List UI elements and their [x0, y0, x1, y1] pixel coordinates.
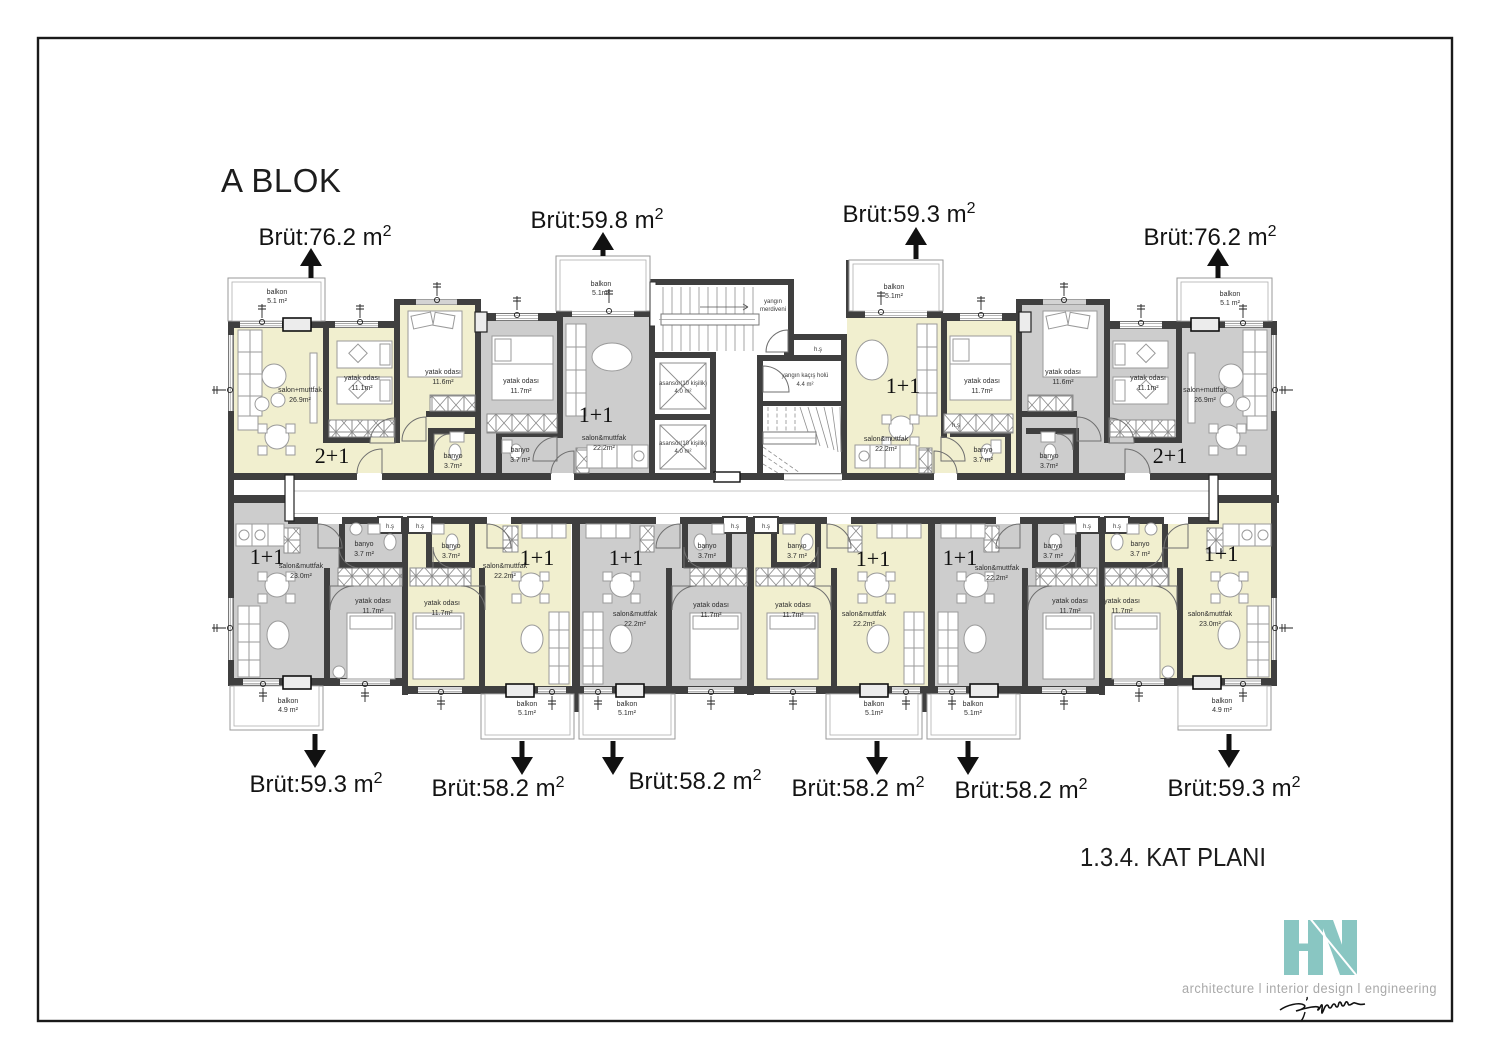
svg-text:22.2m²: 22.2m²: [986, 575, 1008, 582]
svg-text:h.ş: h.ş: [952, 423, 960, 429]
svg-text:salon+muttfak: salon+muttfak: [1183, 387, 1227, 394]
svg-text:2+1: 2+1: [315, 443, 349, 468]
svg-text:23.0m²: 23.0m²: [1199, 621, 1221, 628]
svg-text:yatak odası: yatak odası: [1045, 369, 1081, 376]
svg-text:balkon: balkon: [884, 284, 905, 291]
svg-text:banyo: banyo: [1039, 453, 1058, 460]
svg-text:banyo: banyo: [1130, 541, 1149, 548]
svg-text:balkon: balkon: [591, 281, 612, 288]
svg-text:banyo: banyo: [697, 543, 716, 550]
svg-text:merdiveni: merdiveni: [760, 307, 786, 313]
svg-text:1.3.4. KAT PLANI: 1.3.4. KAT PLANI: [1080, 842, 1266, 872]
svg-text:1+1: 1+1: [856, 546, 890, 571]
svg-text:banyo: banyo: [787, 543, 806, 550]
svg-text:yatak odası: yatak odası: [355, 598, 391, 605]
svg-text:salon&muttfak: salon&muttfak: [279, 563, 324, 570]
svg-text:3.7 m²: 3.7 m²: [1043, 553, 1064, 560]
svg-text:23.0m²: 23.0m²: [290, 573, 312, 580]
svg-text:11.7m²: 11.7m²: [362, 608, 384, 615]
svg-text:26.9m²: 26.9m²: [289, 397, 311, 404]
svg-text:5.1 m²: 5.1 m²: [267, 298, 288, 305]
svg-text:11.7m²: 11.7m²: [1111, 608, 1133, 615]
svg-text:Brüt:76.2 m2: Brüt:76.2 m2: [1144, 223, 1277, 251]
svg-text:h.ş: h.ş: [731, 524, 739, 530]
svg-text:3.7 m²: 3.7 m²: [1130, 551, 1151, 558]
svg-text:yatak odası: yatak odası: [503, 378, 539, 385]
svg-text:h.ş: h.ş: [1083, 524, 1091, 530]
svg-text:3.7m²: 3.7m²: [698, 553, 717, 560]
svg-text:yatak odası: yatak odası: [693, 602, 729, 609]
svg-text:1+1: 1+1: [943, 545, 977, 570]
svg-text:h.ş: h.ş: [814, 347, 822, 353]
svg-text:4.0 m²: 4.0 m²: [674, 449, 691, 455]
svg-text:1+1: 1+1: [886, 373, 920, 398]
svg-text:Brüt:76.2 m2: Brüt:76.2 m2: [259, 223, 392, 251]
svg-text:asansör(10 kişilik): asansör(10 kişilik): [659, 441, 707, 447]
svg-text:3.7 m²: 3.7 m²: [973, 457, 994, 464]
svg-text:5.1m²: 5.1m²: [518, 710, 537, 717]
svg-text:yatak odası: yatak odası: [1104, 598, 1140, 605]
svg-text:Brüt:58.2 m2: Brüt:58.2 m2: [629, 767, 762, 795]
svg-text:11.6m²: 11.6m²: [1052, 379, 1074, 386]
svg-text:11.7m²: 11.7m²: [431, 610, 453, 617]
svg-text:banyo: banyo: [510, 447, 529, 454]
svg-text:3.7m²: 3.7m²: [442, 553, 461, 560]
svg-text:5.1m²: 5.1m²: [865, 710, 884, 717]
svg-text:5.1m²: 5.1m²: [618, 710, 637, 717]
svg-text:balkon: balkon: [963, 701, 984, 708]
svg-text:22.2m²: 22.2m²: [593, 445, 615, 452]
svg-text:1+1: 1+1: [1204, 541, 1238, 566]
svg-text:salon&muttfak: salon&muttfak: [483, 563, 528, 570]
svg-text:yatak odası: yatak odası: [775, 602, 811, 609]
svg-text:Brüt:59.3 m2: Brüt:59.3 m2: [1168, 774, 1301, 802]
svg-text:11.7m²: 11.7m²: [1059, 608, 1081, 615]
svg-text:yatak odası: yatak odası: [964, 378, 1000, 385]
svg-text:3.7 m²: 3.7 m²: [354, 551, 375, 558]
svg-text:11.1m²: 11.1m²: [351, 385, 373, 392]
svg-text:22.2m²: 22.2m²: [875, 446, 897, 453]
svg-text:3.7 m²: 3.7 m²: [787, 553, 808, 560]
svg-text:h.ş: h.ş: [762, 524, 770, 530]
svg-text:h.ş: h.ş: [386, 524, 394, 530]
svg-text:A BLOK: A BLOK: [221, 162, 341, 199]
svg-text:11.7m²: 11.7m²: [971, 388, 993, 395]
svg-text:banyo: banyo: [441, 543, 460, 550]
svg-text:balkon: balkon: [278, 698, 299, 705]
svg-text:22.2m²: 22.2m²: [624, 621, 646, 628]
svg-text:yangın: yangın: [764, 299, 782, 305]
svg-text:1+1: 1+1: [609, 545, 643, 570]
svg-text:h.ş: h.ş: [1113, 524, 1121, 530]
svg-text:h.ş: h.ş: [416, 524, 424, 530]
svg-text:salon&muttfak: salon&muttfak: [1188, 611, 1233, 618]
svg-text:yatak odası: yatak odası: [1130, 375, 1166, 382]
svg-text:2+1: 2+1: [1153, 443, 1187, 468]
svg-text:22.2m²: 22.2m²: [494, 573, 516, 580]
svg-text:11.1m²: 11.1m²: [1137, 385, 1159, 392]
svg-text:Brüt:59.3 m2: Brüt:59.3 m2: [843, 200, 976, 228]
svg-text:banyo: banyo: [1043, 543, 1062, 550]
svg-text:salon&muttfak: salon&muttfak: [842, 611, 887, 618]
svg-text:banyo: banyo: [443, 453, 462, 460]
svg-text:3.7m²: 3.7m²: [444, 463, 463, 470]
svg-text:yatak odası: yatak odası: [1052, 598, 1088, 605]
svg-text:11.7m²: 11.7m²: [510, 388, 532, 395]
svg-text:4.0 m²: 4.0 m²: [674, 389, 691, 395]
svg-text:salon&muttfak: salon&muttfak: [975, 565, 1020, 572]
svg-text:yatak odası: yatak odası: [425, 369, 461, 376]
svg-text:balkon: balkon: [864, 701, 885, 708]
svg-text:balkon: balkon: [1212, 698, 1233, 705]
svg-text:Brüt:58.2 m2: Brüt:58.2 m2: [432, 774, 565, 802]
svg-text:balkon: balkon: [1220, 291, 1241, 298]
svg-text:3.7 m²: 3.7 m²: [510, 457, 531, 464]
svg-text:5.1 m²: 5.1 m²: [1220, 300, 1241, 307]
svg-text:Brüt:58.2 m2: Brüt:58.2 m2: [792, 774, 925, 802]
svg-text:yatak odası: yatak odası: [344, 375, 380, 382]
svg-text:5.1m²: 5.1m²: [964, 710, 983, 717]
svg-text:banyo: banyo: [973, 447, 992, 454]
svg-text:balkon: balkon: [267, 289, 288, 296]
svg-text:4.9 m²: 4.9 m²: [278, 707, 299, 714]
svg-text:balkon: balkon: [617, 701, 638, 708]
svg-text:balkon: balkon: [517, 701, 538, 708]
svg-text:4.4 m²: 4.4 m²: [796, 382, 813, 388]
svg-text:4.9 m²: 4.9 m²: [1212, 707, 1233, 714]
svg-text:Brüt:58.2 m2: Brüt:58.2 m2: [955, 776, 1088, 804]
svg-text:salon&muttfak: salon&muttfak: [582, 435, 627, 442]
svg-text:yangın kaçış holü: yangın kaçış holü: [782, 373, 829, 379]
svg-text:11.6m²: 11.6m²: [432, 379, 454, 386]
svg-text:1+1: 1+1: [579, 402, 613, 427]
svg-text:salon&muttfak: salon&muttfak: [864, 436, 909, 443]
svg-text:Brüt:59.8 m2: Brüt:59.8 m2: [531, 206, 664, 234]
svg-text:11.7m²: 11.7m²: [700, 612, 722, 619]
svg-text:salon+muttfak: salon+muttfak: [278, 387, 322, 394]
svg-text:salon&muttfak: salon&muttfak: [613, 611, 658, 618]
svg-text:banyo: banyo: [354, 541, 373, 548]
svg-text:22.2m²: 22.2m²: [853, 621, 875, 628]
svg-text:asansör(10 kişilik): asansör(10 kişilik): [659, 381, 707, 387]
svg-text:26.9m²: 26.9m²: [1194, 397, 1216, 404]
svg-text:11.7m²: 11.7m²: [782, 612, 804, 619]
svg-text:Brüt:59.3 m2: Brüt:59.3 m2: [250, 770, 383, 798]
svg-text:yatak odası: yatak odası: [424, 600, 460, 607]
svg-text:architecture l interior desig: architecture l interior design l enginee…: [1182, 981, 1437, 996]
svg-text:5.1m²: 5.1m²: [885, 293, 904, 300]
svg-text:3.7m²: 3.7m²: [1040, 463, 1059, 470]
